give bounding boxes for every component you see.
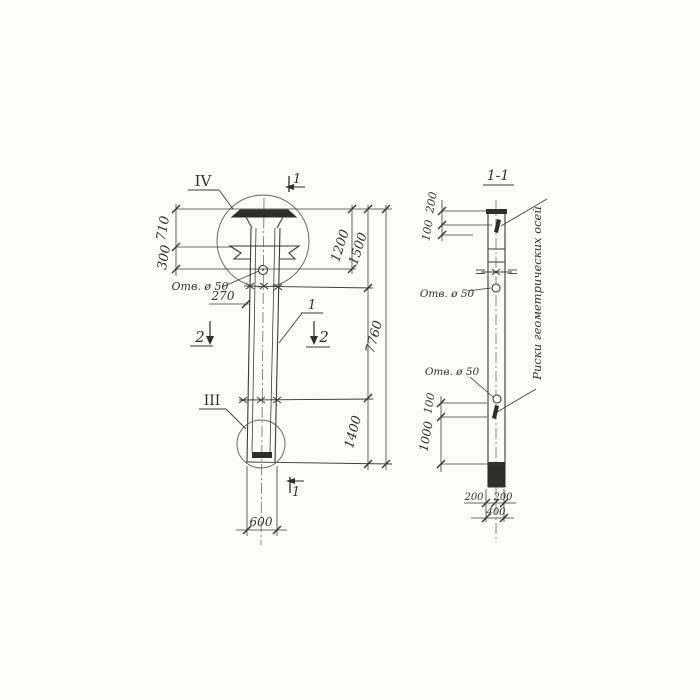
dim-100-top: 100: [419, 219, 435, 242]
technical-drawing-sheet: IV III 1 1 2: [0, 0, 700, 700]
bottom-plug: [252, 452, 272, 458]
hole-leader-section-bottom: [470, 377, 493, 397]
dim-400: 400: [485, 507, 506, 518]
section-solid-bottom: [488, 462, 505, 487]
elevation-view: IV III 1 1 2: [154, 172, 392, 545]
dim-200-bottom-left: 200: [463, 492, 484, 503]
section-joint: [476, 269, 517, 275]
dim-1000: 1000: [417, 420, 436, 453]
section-cut-1-top-label: 1: [293, 172, 301, 187]
axis-note: Риски геометрических осей: [530, 206, 544, 380]
dim-200-bottom-right: 200: [492, 492, 513, 503]
section-view: 1-1 Отв. ø 50: [417, 168, 547, 543]
section-dim-bottom-left: [437, 396, 504, 472]
dim-300: 300: [155, 244, 174, 271]
section-cut-2-left-label: 2: [194, 328, 205, 346]
dim-270: 270: [211, 289, 235, 303]
section-cap-plate: [486, 209, 507, 214]
collar-wings: [230, 246, 299, 259]
cap-plate: [232, 210, 296, 217]
dim-7760: 7760: [363, 319, 386, 355]
detail-marker-iii-label: III: [204, 393, 221, 409]
section-cut-2-right-label: 2: [318, 328, 329, 346]
hole-50-section-top: [492, 284, 500, 292]
hole-50-section-bottom: [493, 395, 501, 403]
dim-600: 600: [250, 515, 273, 529]
hole-label-section-bottom: Отв. ø 50: [425, 366, 480, 378]
section-cut-1-bottom-label: 1: [292, 485, 300, 500]
column-drawing: IV III 1 1 2: [0, 0, 700, 700]
lower-joint: [239, 397, 373, 403]
position-label-1: 1: [308, 298, 316, 313]
axis-mark-bottom: [492, 405, 499, 419]
elevation-center-axis: [261, 198, 264, 545]
detail-marker-iv: [188, 190, 233, 209]
cap-neck: [246, 217, 283, 228]
section-dim-top: [438, 200, 492, 241]
detail-marker-iv-label: IV: [195, 172, 213, 190]
dim-710: 710: [154, 215, 173, 242]
dim-200-top: 200: [423, 191, 440, 215]
detail-marker-iii: [199, 409, 246, 429]
dim-100-bottom: 100: [421, 392, 437, 415]
hole-label-section-top: Отв. ø 50: [420, 288, 475, 300]
axis-mark-top: [494, 219, 501, 233]
section-column-body: [488, 214, 505, 487]
dim-1400: 1400: [342, 414, 365, 450]
section-title: 1-1: [487, 168, 510, 184]
